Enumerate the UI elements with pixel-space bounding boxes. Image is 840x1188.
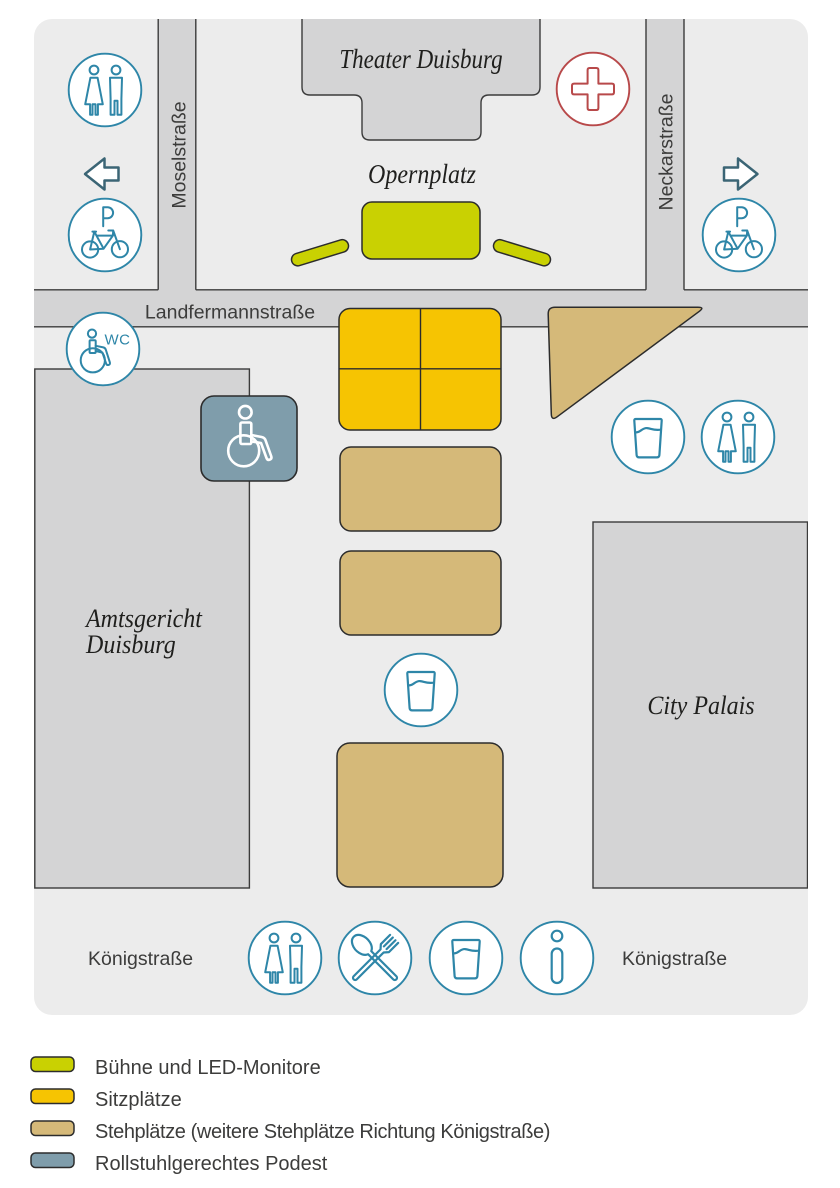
svg-text:Königstraße: Königstraße (88, 948, 193, 970)
svg-text:Neckarstraße: Neckarstraße (656, 93, 678, 210)
svg-text:Landfermannstraße: Landfermannstraße (145, 302, 315, 324)
svg-text:Theater Duisburg: Theater Duisburg (339, 45, 502, 74)
svg-text:City Palais: City Palais (647, 690, 754, 721)
svg-text:Rollstuhlgerechtes Podest: Rollstuhlgerechtes Podest (95, 1153, 328, 1175)
svg-text:Stehplätze (weitere Stehplätze: Stehplätze (weitere Stehplätze Richtung … (95, 1121, 550, 1143)
svg-text:Königstraße: Königstraße (622, 948, 727, 970)
svg-text:Duisburg: Duisburg (85, 629, 176, 660)
svg-text:Sitzplätze: Sitzplätze (95, 1089, 182, 1111)
svg-text:Opernplatz: Opernplatz (368, 158, 476, 189)
svg-text:Bühne und LED-Monitore: Bühne und LED-Monitore (95, 1057, 321, 1079)
svg-text:Moselstraße: Moselstraße (169, 101, 191, 208)
